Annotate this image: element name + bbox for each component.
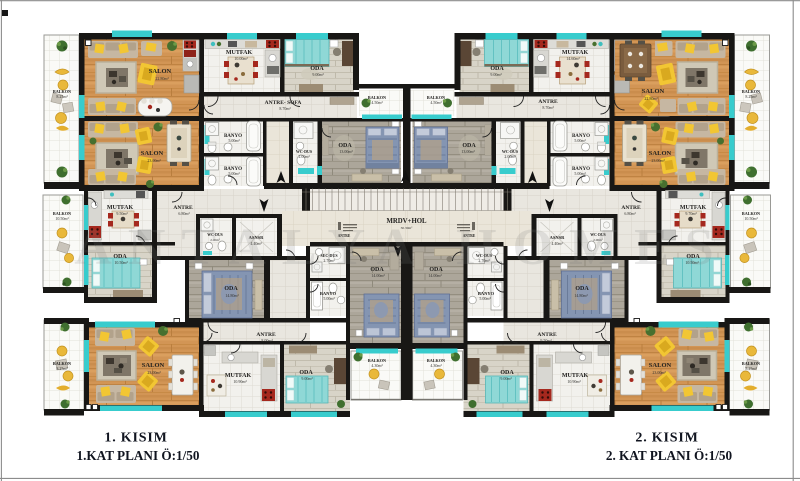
svg-text:5.00m²: 5.00m² [479,296,491,301]
svg-text:ODA: ODA [575,286,589,292]
svg-text:10.50m²: 10.50m² [744,216,758,221]
svg-text:5.00m²: 5.00m² [228,171,240,176]
svg-text:SALON: SALON [141,150,164,157]
svg-text:9.00m²: 9.00m² [301,376,313,381]
svg-text:4.50m²: 4.50m² [430,100,442,105]
svg-text:6.80m²: 6.80m² [178,211,190,216]
svg-text:2. KISIM: 2. KISIM [635,431,698,446]
svg-text:9.00m²: 9.00m² [312,72,324,77]
svg-text:10.50m²: 10.50m² [55,216,69,221]
svg-text:23.00m²: 23.00m² [147,158,161,163]
svg-text:5.00m²: 5.00m² [228,138,240,143]
svg-text:9.00m²: 9.00m² [490,72,502,77]
svg-text:10.90m²: 10.90m² [233,379,247,384]
svg-text:8.00m²: 8.00m² [261,338,273,343]
svg-text:5.00m²: 5.00m² [574,171,586,176]
svg-text:8.25m²: 8.25m² [745,94,757,99]
svg-text:23.00m²: 23.00m² [652,370,666,375]
svg-text:14.80m²: 14.80m² [225,293,239,298]
svg-text:4.50m²: 4.50m² [371,100,383,105]
svg-text:22.80m²: 22.80m² [155,76,169,81]
svg-text:1.KAT PLANI Ö:1/50: 1.KAT PLANI Ö:1/50 [77,448,200,463]
svg-text:8.70m²: 8.70m² [279,106,291,111]
svg-text:4.30m²: 4.30m² [430,363,442,368]
svg-text:14.60m²: 14.60m² [566,56,580,61]
svg-text:10.90m²: 10.90m² [567,379,581,384]
svg-text:13.00m²: 13.00m² [339,149,353,154]
svg-text:SALON: SALON [642,88,665,95]
svg-text:8.70m²: 8.70m² [542,105,554,110]
svg-text:10.00m²: 10.00m² [234,56,248,61]
svg-text:5.00m²: 5.00m² [323,296,335,301]
svg-text:ANTALYA HOMES: ANTALYA HOMES [74,219,729,276]
svg-text:2.00m²: 2.00m² [504,154,516,159]
svg-text:9.00m²: 9.00m² [500,376,512,381]
svg-text:9.50m²: 9.50m² [116,211,128,216]
svg-text:14.80m²: 14.80m² [574,293,588,298]
svg-text:2.00m²: 2.00m² [298,154,310,159]
svg-text:2. KAT PLANI Ö:1/50: 2. KAT PLANI Ö:1/50 [606,448,733,463]
svg-text:SALON: SALON [149,68,172,75]
svg-text:SALON: SALON [649,362,672,369]
svg-text:9.70m²: 9.70m² [685,211,697,216]
svg-text:4.30m²: 4.30m² [371,363,383,368]
svg-text:13.00m²: 13.00m² [461,149,475,154]
svg-text:ODA: ODA [224,286,238,292]
svg-text:8.25m²: 8.25m² [56,94,68,99]
svg-text:22.80m²: 22.80m² [644,96,658,101]
svg-text:1. KISIM: 1. KISIM [104,431,167,446]
svg-text:5.00m²: 5.00m² [574,138,586,143]
svg-text:8.25m²: 8.25m² [745,366,757,371]
svg-text:8.25m²: 8.25m² [56,366,68,371]
svg-text:9.50m²: 9.50m² [540,338,552,343]
svg-text:SALON: SALON [142,362,165,369]
svg-text:23.00m²: 23.00m² [651,158,665,163]
svg-text:6.80m²: 6.80m² [624,211,636,216]
svg-text:SALON: SALON [649,150,672,157]
svg-text:23.00m²: 23.00m² [147,370,161,375]
